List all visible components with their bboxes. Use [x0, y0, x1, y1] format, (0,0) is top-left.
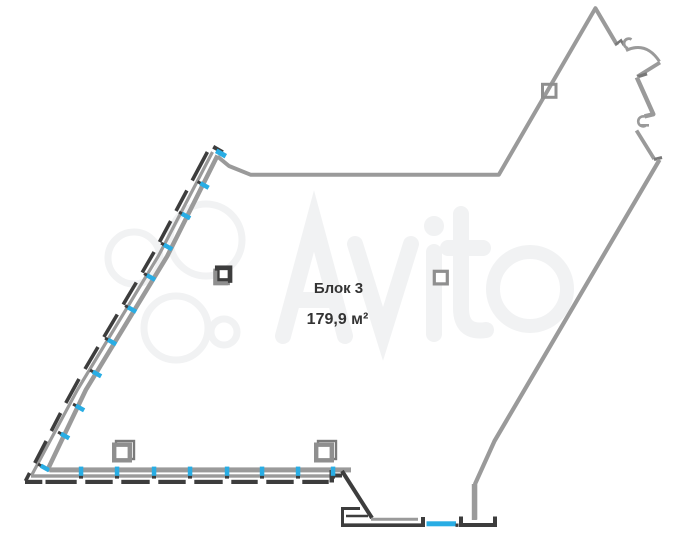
svg-text:Блок 3: Блок 3	[314, 280, 363, 297]
svg-text:179,9 м²: 179,9 м²	[307, 311, 369, 328]
